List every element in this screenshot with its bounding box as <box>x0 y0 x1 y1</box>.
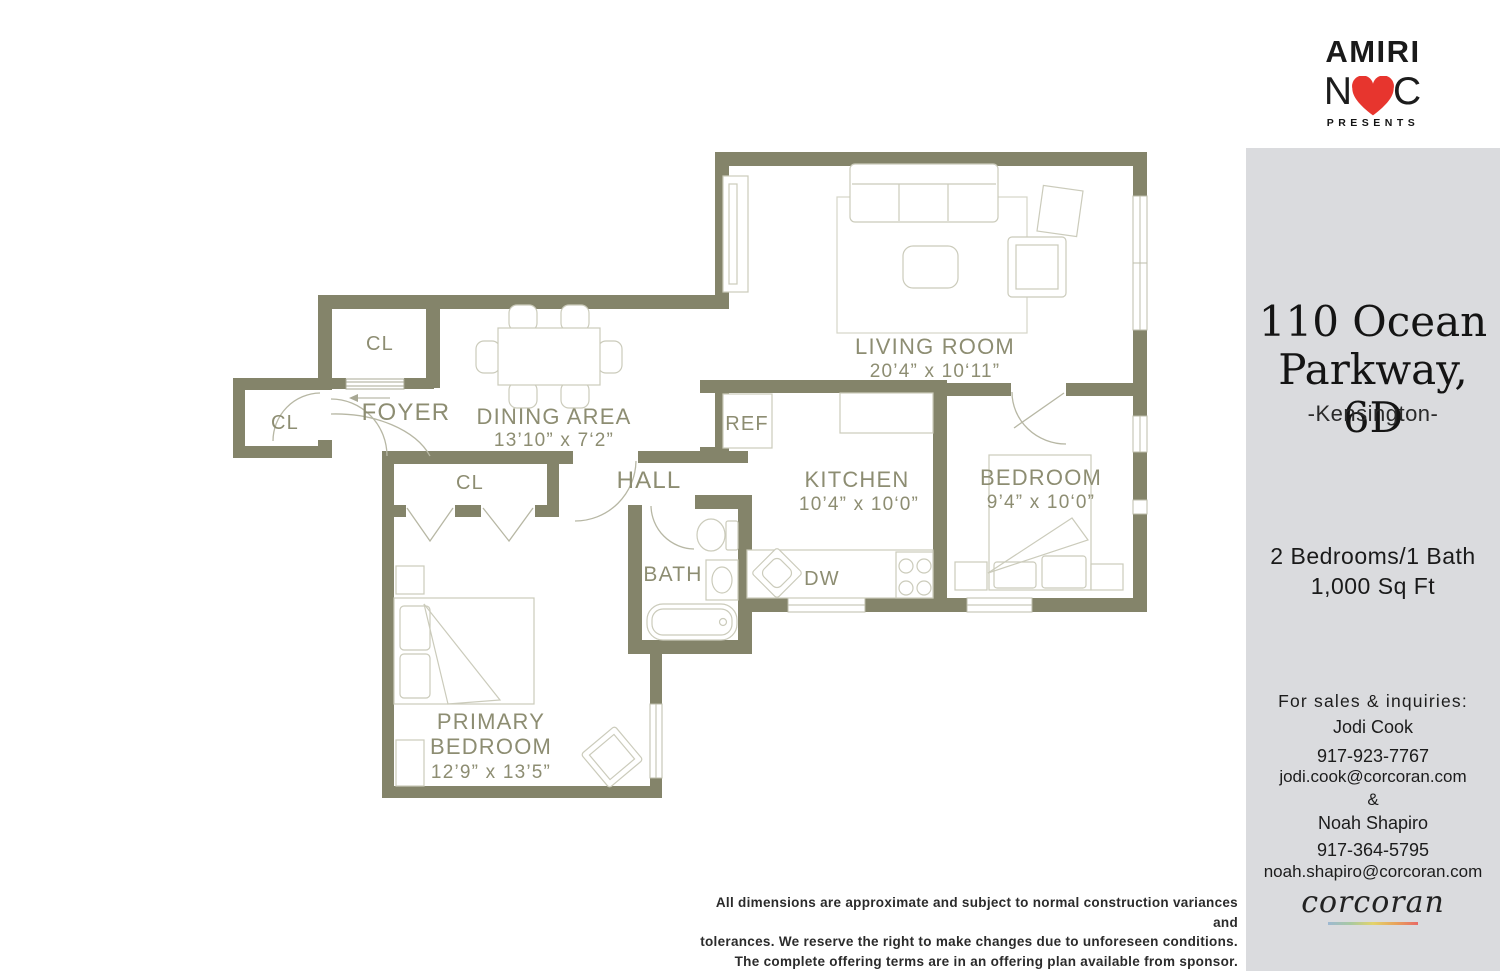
dining-set <box>476 305 622 408</box>
monogram-n: N <box>1324 70 1353 114</box>
dresser <box>396 740 424 786</box>
dishwasher-label: DW <box>804 568 840 590</box>
kitchen-label: KITCHEN <box>805 467 910 492</box>
bath-label: BATH <box>643 563 702 586</box>
brand-logo: AMIRI N C PRESENTS <box>1246 34 1500 129</box>
listing-sidebar: 110 Ocean Parkway, 6D -Kensington- 2 Bed… <box>1246 148 1500 971</box>
nightstand <box>396 566 424 594</box>
brand-monogram: N C <box>1246 70 1500 114</box>
dining-area-dims: 13’10” x 7‘2” <box>494 430 614 451</box>
bedroom-label: BEDROOM <box>980 465 1102 490</box>
nightstand <box>1091 564 1123 590</box>
agent-name: Jodi Cook <box>1246 717 1500 738</box>
hall-label: HALL <box>617 467 682 494</box>
monogram-c: C <box>1393 70 1422 114</box>
kitchen-dims: 10’4” x 10‘0” <box>799 494 919 515</box>
closet-label: CL <box>271 412 299 434</box>
brokerage-gradient-bar <box>1328 922 1418 925</box>
bathtub <box>647 604 737 640</box>
address-line-2: Parkway, 6D <box>1246 346 1500 442</box>
accent-chair <box>581 726 643 788</box>
disclaimer-line-3: The complete offering terms are in an of… <box>698 952 1238 971</box>
sofa <box>850 164 998 222</box>
square-footage: 1,000 Sq Ft <box>1246 571 1500 601</box>
bath-sink <box>706 560 738 600</box>
upper-counter <box>840 393 933 433</box>
fridge-label: REF <box>725 413 769 435</box>
agent-name: Noah Shapiro <box>1246 813 1500 834</box>
living-room-dims: 20’4” x 10‘11” <box>870 361 1001 382</box>
neighborhood: -Kensington- <box>1246 401 1500 427</box>
agent-email[interactable]: noah.shapiro@corcoran.com <box>1246 862 1500 882</box>
dining-area-label: DINING AREA <box>476 404 631 429</box>
agent-email[interactable]: jodi.cook@corcoran.com <box>1246 767 1500 787</box>
primary-bedroom-label-2: BEDROOM <box>430 734 552 759</box>
address-line-1: 110 Ocean <box>1246 298 1500 346</box>
nightstand <box>955 562 987 590</box>
agents-separator: & <box>1246 790 1500 810</box>
brand-presents: PRESENTS <box>1246 117 1500 129</box>
closet-label: CL <box>456 472 484 494</box>
toilet <box>697 519 738 551</box>
stove <box>896 552 933 598</box>
brokerage-logo: corcoran <box>1246 885 1500 920</box>
floorplan-drawing: LIVING ROOM 20’4” x 10‘11” DINING AREA 1… <box>0 0 1246 971</box>
bedroom-dims: 9’4” x 10‘0” <box>987 492 1095 513</box>
contact-heading: For sales & inquiries: <box>1246 691 1500 712</box>
room-labels: LIVING ROOM 20’4” x 10‘11” DINING AREA 1… <box>271 333 1102 783</box>
armchair <box>1008 185 1083 297</box>
agent-phone[interactable]: 917-364-5795 <box>1246 840 1500 861</box>
agent-phone[interactable]: 917-923-7767 <box>1246 746 1500 767</box>
media-unit <box>723 176 748 292</box>
primary-bedroom-label-1: PRIMARY <box>437 709 545 734</box>
floorplan-flyer: LIVING ROOM 20’4” x 10‘11” DINING AREA 1… <box>0 0 1500 971</box>
coffee-table <box>903 246 958 288</box>
disclaimer-line-2: tolerances. We reserve the right to make… <box>698 932 1238 952</box>
living-room-label: LIVING ROOM <box>855 334 1015 359</box>
brand-name: AMIRI <box>1246 34 1500 70</box>
heart-icon <box>1350 76 1396 118</box>
beds-baths: 2 Bedrooms/1 Bath <box>1246 541 1500 571</box>
closet-label: CL <box>366 333 394 355</box>
foyer-label: FOYER <box>362 399 451 426</box>
disclaimer-line-1: All dimensions are approximate and subje… <box>698 893 1238 932</box>
disclaimer: All dimensions are approximate and subje… <box>698 893 1238 971</box>
primary-bedroom-dims: 12’9” x 13’5” <box>431 762 551 783</box>
listing-stats: 2 Bedrooms/1 Bath 1,000 Sq Ft <box>1246 541 1500 601</box>
